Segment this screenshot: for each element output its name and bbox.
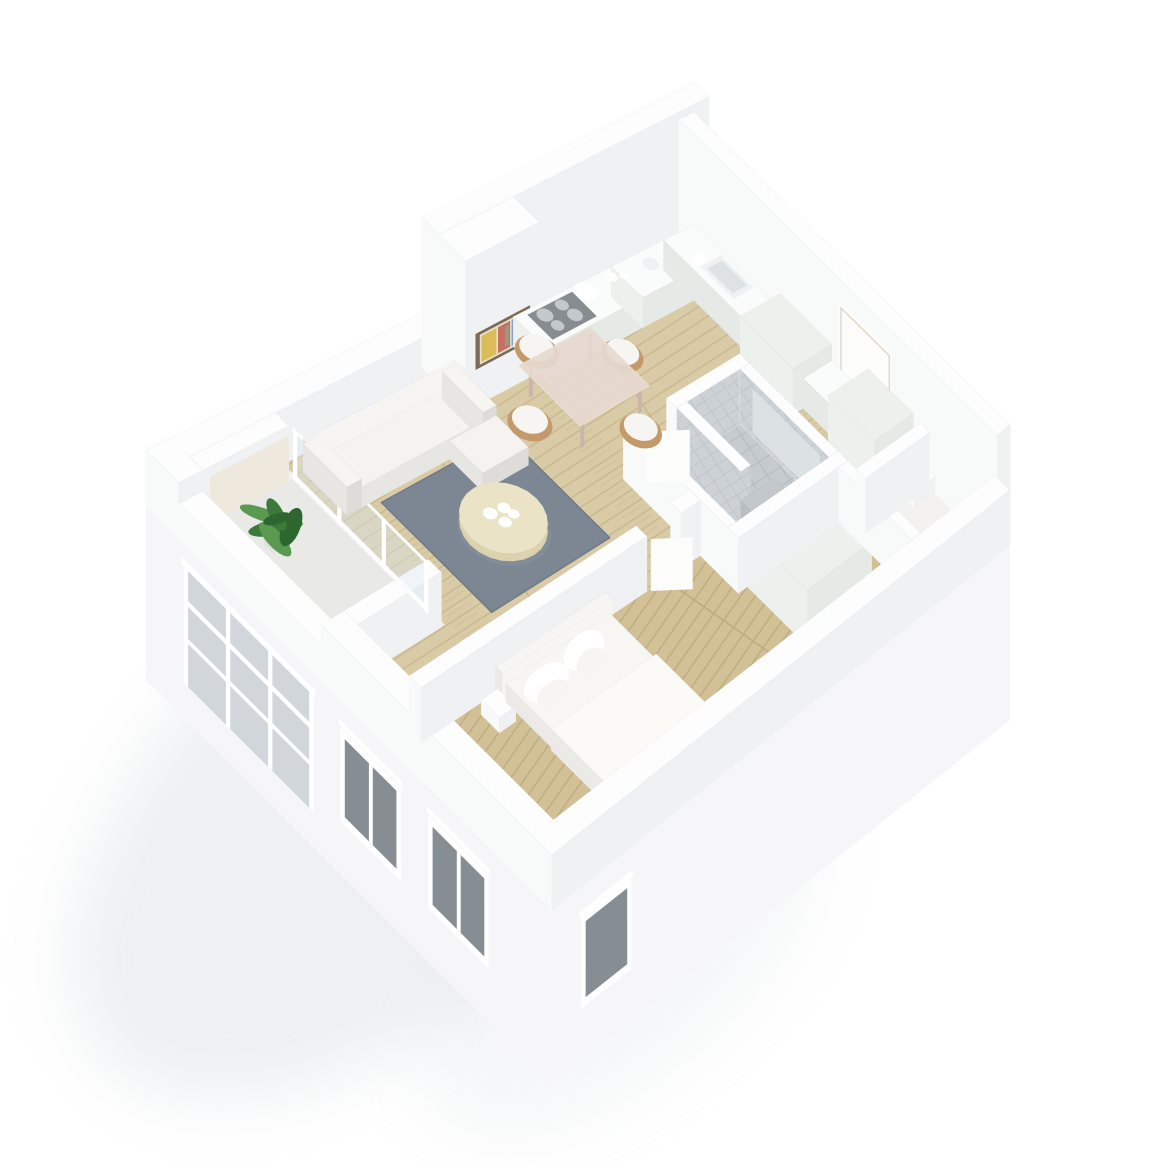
bedroom-window-bar	[457, 851, 461, 933]
nw-wall-kitchen-tall-left-face	[422, 218, 439, 385]
sliding-door-post-4	[424, 560, 428, 614]
sliding-door-post-1	[293, 429, 297, 483]
loggia-window-mullion-4	[309, 690, 313, 812]
floorplan-stage	[0, 0, 1170, 1167]
loggia-window-mullion-2	[226, 607, 230, 729]
apartment-3d-floorplan-render	[0, 0, 1170, 1167]
painting-color-teal	[505, 324, 509, 346]
sliding-door-post-3	[382, 518, 386, 572]
hallway-south-wall-left-face	[856, 469, 866, 534]
bathroom-se-wall-left-face	[728, 528, 739, 593]
bedroom-door	[651, 537, 693, 591]
loggia-window-mullion-1	[184, 565, 188, 687]
living-window-bar	[369, 763, 373, 845]
loggia-window-mullion-3	[268, 649, 272, 771]
